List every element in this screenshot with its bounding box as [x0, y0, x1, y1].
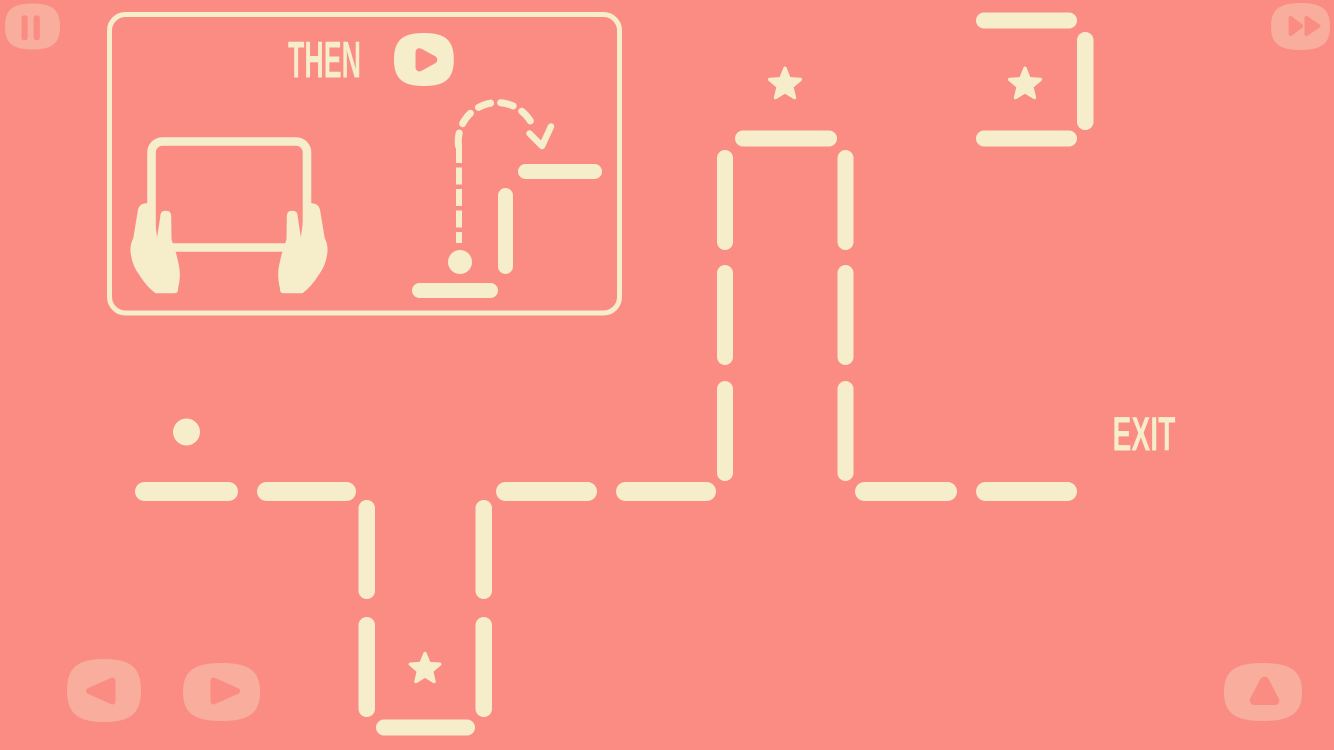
svg-text:THEN: THEN — [288, 31, 361, 89]
svg-text:EXIT: EXIT — [1113, 409, 1176, 462]
